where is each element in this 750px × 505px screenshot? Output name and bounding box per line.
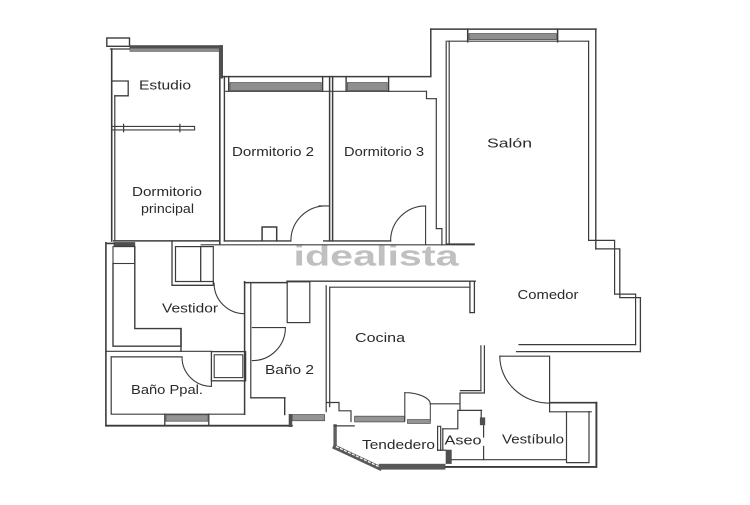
svg-text:Vestíbulo: Vestíbulo (502, 432, 564, 447)
svg-text:Baño 2: Baño 2 (265, 362, 314, 377)
svg-text:Comedor: Comedor (518, 287, 580, 302)
svg-text:Dormitorio 3: Dormitorio 3 (344, 144, 424, 159)
svg-text:Dormitorio: Dormitorio (132, 184, 202, 199)
svg-text:principal: principal (141, 201, 194, 216)
svg-text:Aseo: Aseo (445, 433, 482, 448)
svg-text:Vestidor: Vestidor (162, 301, 219, 316)
svg-text:Estudio: Estudio (139, 78, 191, 93)
svg-text:Baño Ppal.: Baño Ppal. (131, 382, 203, 397)
svg-text:Cocina: Cocina (355, 330, 406, 345)
svg-text:Dormitorio 2: Dormitorio 2 (232, 144, 314, 159)
svg-text:Tendedero: Tendedero (362, 437, 435, 452)
svg-text:Salón: Salón (487, 136, 532, 151)
